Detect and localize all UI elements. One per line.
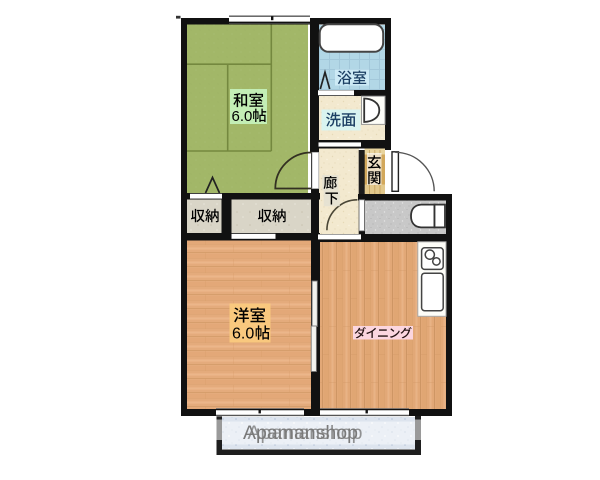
svg-text:Apamanshop: Apamanshop [248, 422, 363, 444]
svg-text:6.0: 6.0 [232, 108, 253, 125]
svg-text:6.0: 6.0 [232, 326, 254, 343]
